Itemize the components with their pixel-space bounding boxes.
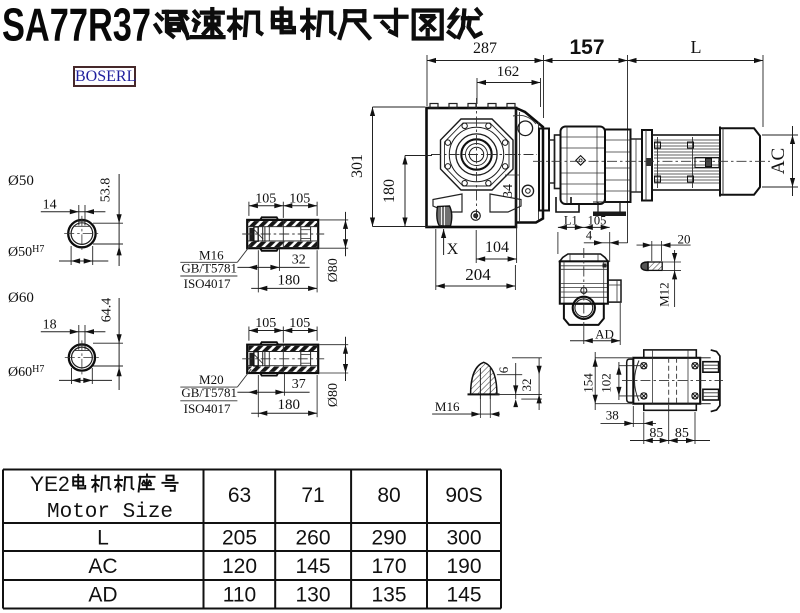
svg-text:32: 32 <box>519 379 534 392</box>
svg-text:154: 154 <box>581 373 596 393</box>
svg-text:ISO4017: ISO4017 <box>184 276 231 291</box>
svg-text:Ø60H7: Ø60H7 <box>8 364 44 380</box>
svg-text:287: 287 <box>473 40 497 57</box>
svg-text:AC: AC <box>768 148 789 174</box>
svg-text:L: L <box>691 37 702 57</box>
svg-text:18: 18 <box>43 318 57 333</box>
svg-text:M12: M12 <box>656 282 671 307</box>
svg-text:105: 105 <box>255 316 276 331</box>
svg-text:145: 145 <box>446 584 481 607</box>
svg-text:L1: L1 <box>564 213 578 227</box>
svg-text:Ø50H7: Ø50H7 <box>8 244 44 260</box>
svg-text:ISO4017: ISO4017 <box>184 401 231 416</box>
svg-text:GB/T5781: GB/T5781 <box>181 385 237 400</box>
svg-text:Motor Size: Motor Size <box>47 501 173 524</box>
svg-text:180: 180 <box>278 272 301 288</box>
svg-text:AD: AD <box>88 584 117 607</box>
svg-text:GB/T5781: GB/T5781 <box>181 260 237 275</box>
svg-text:71: 71 <box>301 484 324 507</box>
svg-text:20: 20 <box>678 231 691 246</box>
svg-text:105: 105 <box>289 191 310 206</box>
svg-text:300: 300 <box>446 527 481 550</box>
svg-text:180: 180 <box>381 179 398 203</box>
svg-text:80: 80 <box>377 484 400 507</box>
svg-text:Ø60: Ø60 <box>8 290 34 306</box>
svg-text:SA77R37: SA77R37 <box>2 0 151 51</box>
svg-text:37: 37 <box>292 377 306 392</box>
svg-text:301: 301 <box>349 154 366 178</box>
svg-text:AD: AD <box>595 327 614 342</box>
svg-text:105: 105 <box>289 316 310 331</box>
svg-text:145: 145 <box>295 555 330 578</box>
svg-text:4: 4 <box>586 228 593 242</box>
svg-text:105: 105 <box>588 213 607 227</box>
svg-text:102: 102 <box>599 373 614 393</box>
svg-text:63: 63 <box>228 484 251 507</box>
svg-text:130: 130 <box>295 584 330 607</box>
svg-text:14: 14 <box>43 198 57 213</box>
svg-text:105: 105 <box>255 191 276 206</box>
svg-text:135: 135 <box>371 584 406 607</box>
svg-text:34: 34 <box>501 184 516 198</box>
svg-text:Ø50: Ø50 <box>8 173 34 189</box>
svg-text:204: 204 <box>465 265 491 284</box>
svg-text:53.8: 53.8 <box>98 178 113 203</box>
svg-text:120: 120 <box>222 555 257 578</box>
svg-text:L: L <box>97 527 109 550</box>
svg-text:6: 6 <box>496 366 511 373</box>
svg-text:Ø80: Ø80 <box>326 383 341 407</box>
svg-text:180: 180 <box>278 397 301 413</box>
svg-text:AC: AC <box>88 555 117 578</box>
svg-text:64.4: 64.4 <box>99 298 114 323</box>
svg-text:162: 162 <box>497 64 520 80</box>
svg-text:104: 104 <box>485 239 509 256</box>
svg-text:260: 260 <box>295 527 330 550</box>
svg-text:290: 290 <box>371 527 406 550</box>
svg-text:90S: 90S <box>445 484 482 507</box>
svg-text:M16: M16 <box>435 399 460 414</box>
svg-text:157: 157 <box>569 36 604 59</box>
svg-text:38: 38 <box>606 408 619 423</box>
svg-text:170: 170 <box>371 555 406 578</box>
svg-text:32: 32 <box>292 252 306 267</box>
svg-text:YE2: YE2 <box>30 473 70 496</box>
svg-text:X: X <box>447 241 459 258</box>
svg-text:110: 110 <box>223 584 256 607</box>
svg-text:Ø80: Ø80 <box>326 258 341 282</box>
svg-text:190: 190 <box>446 555 481 578</box>
svg-text:205: 205 <box>222 527 257 550</box>
